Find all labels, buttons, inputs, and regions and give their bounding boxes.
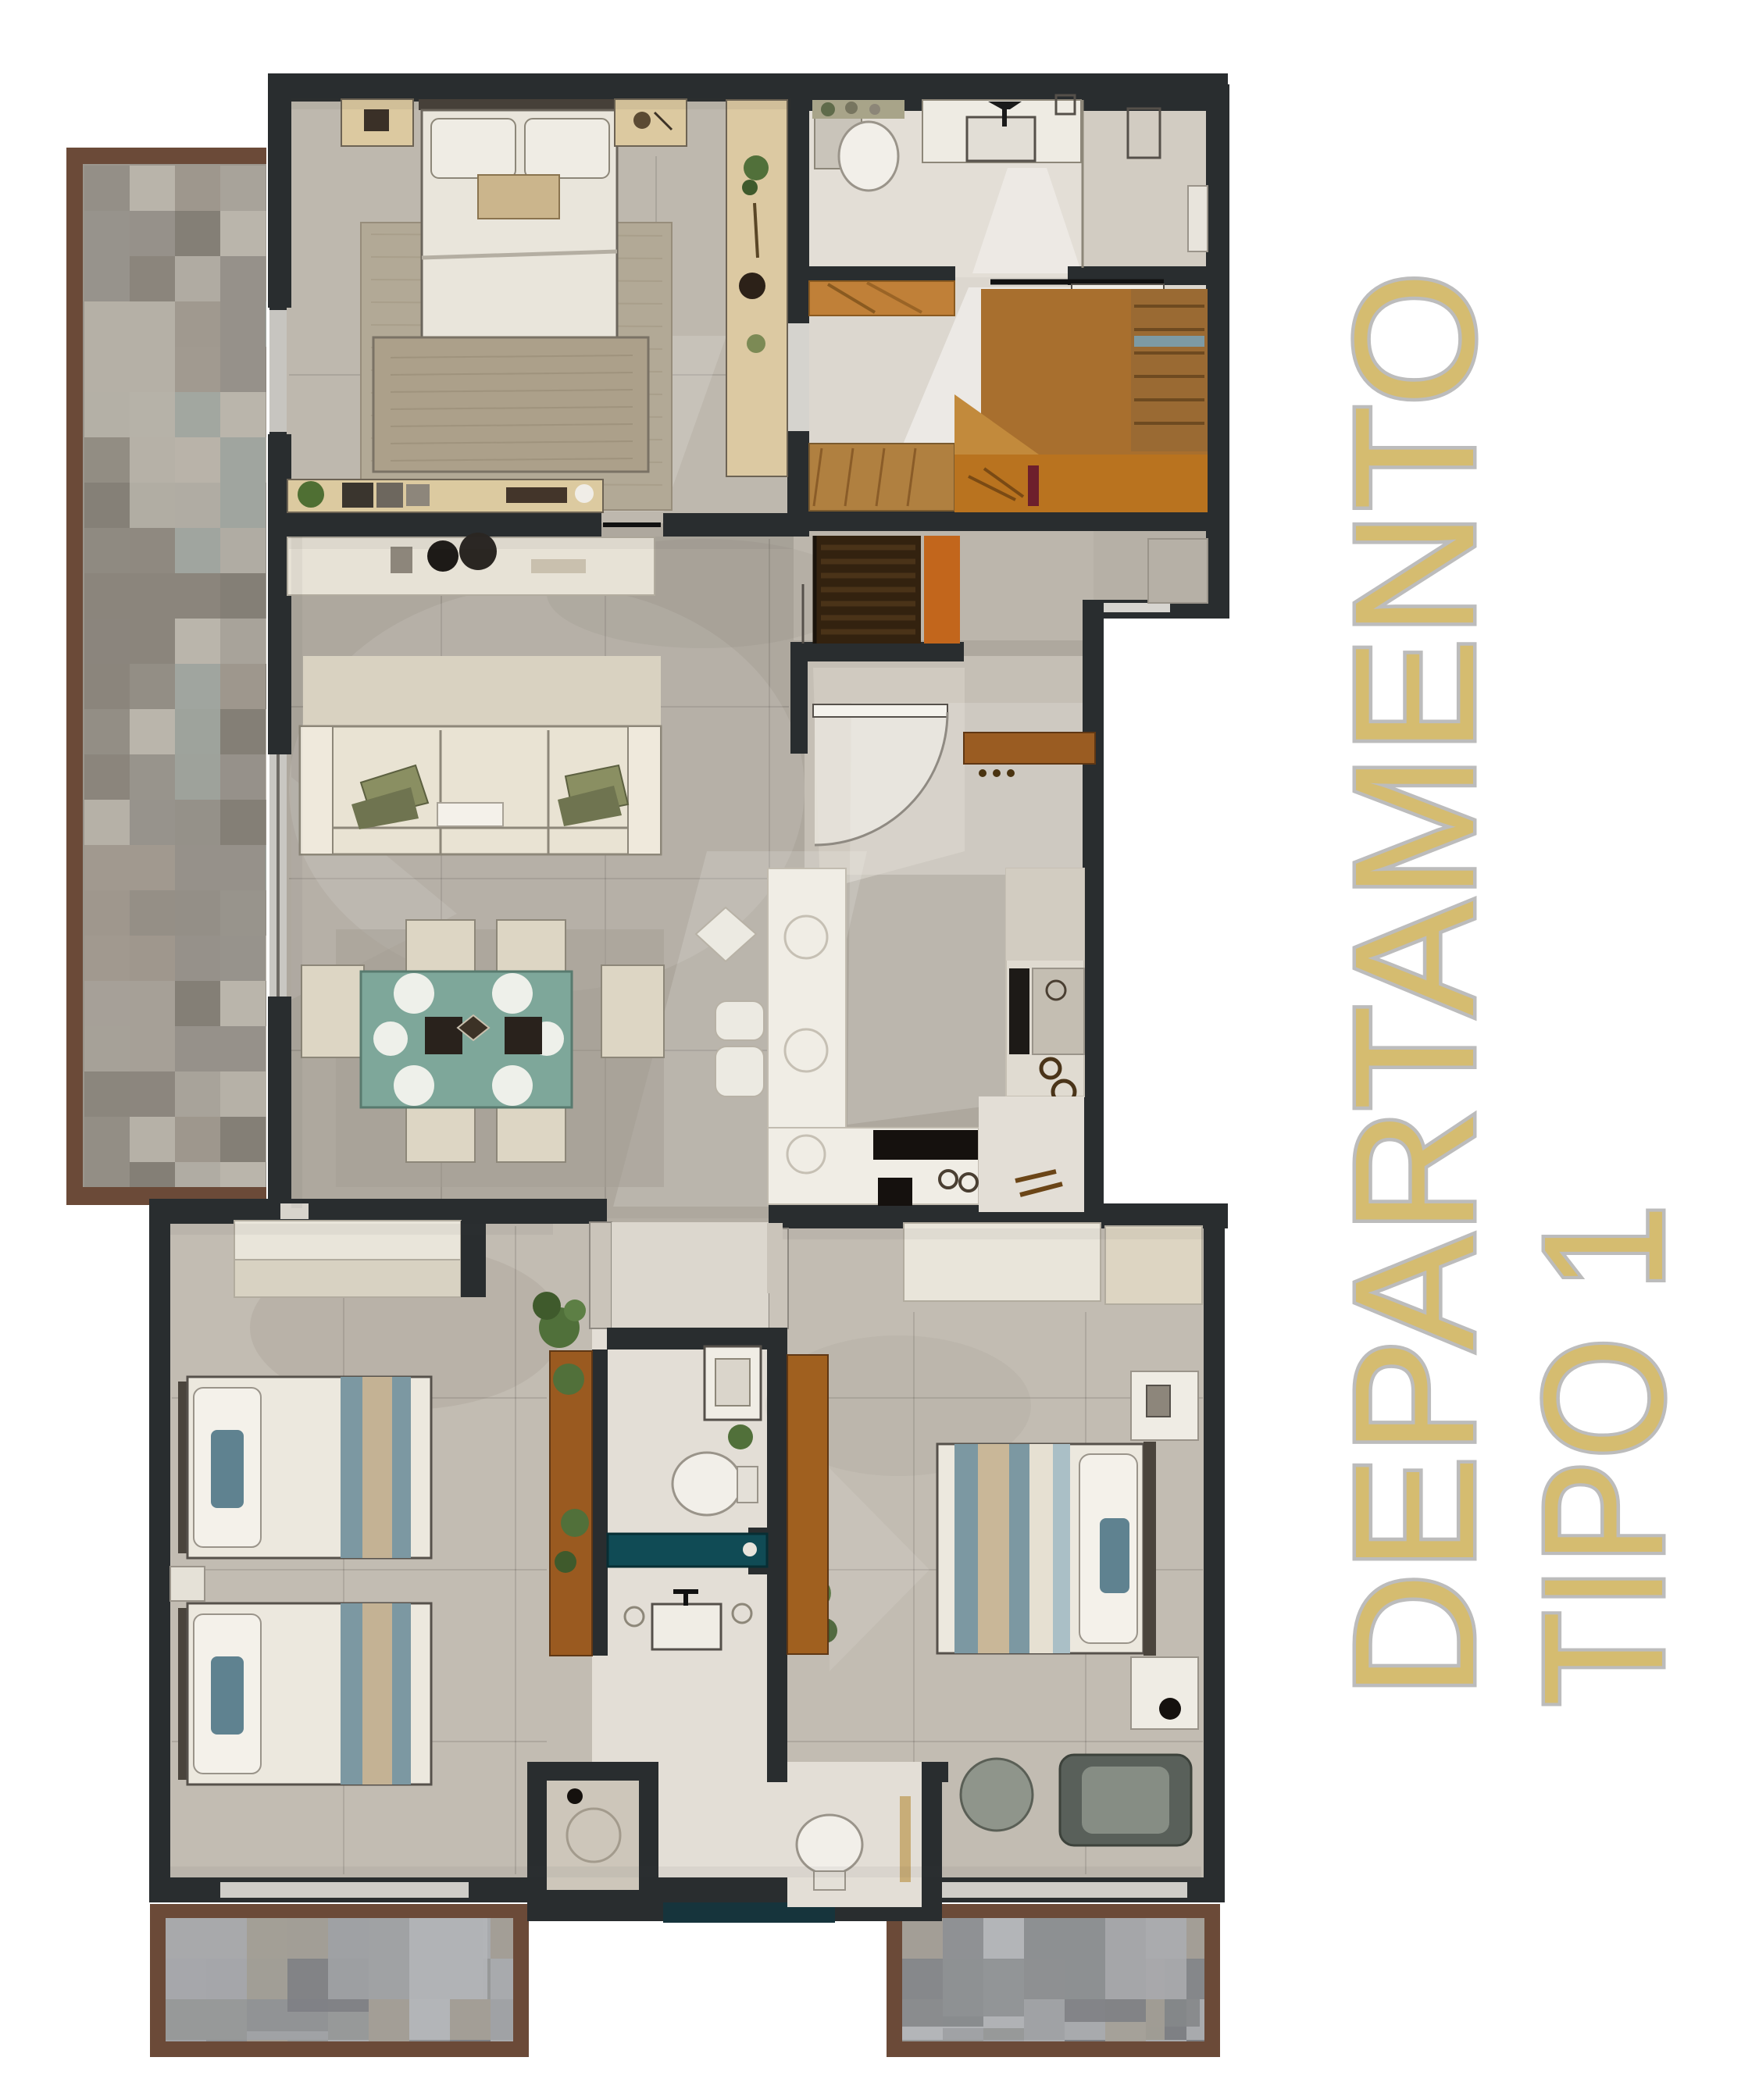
svg-text:DEPARTAMENTO: DEPARTAMENTO: [1320, 270, 1510, 1698]
svg-text:TIPO 1: TIPO 1: [1509, 1203, 1699, 1706]
